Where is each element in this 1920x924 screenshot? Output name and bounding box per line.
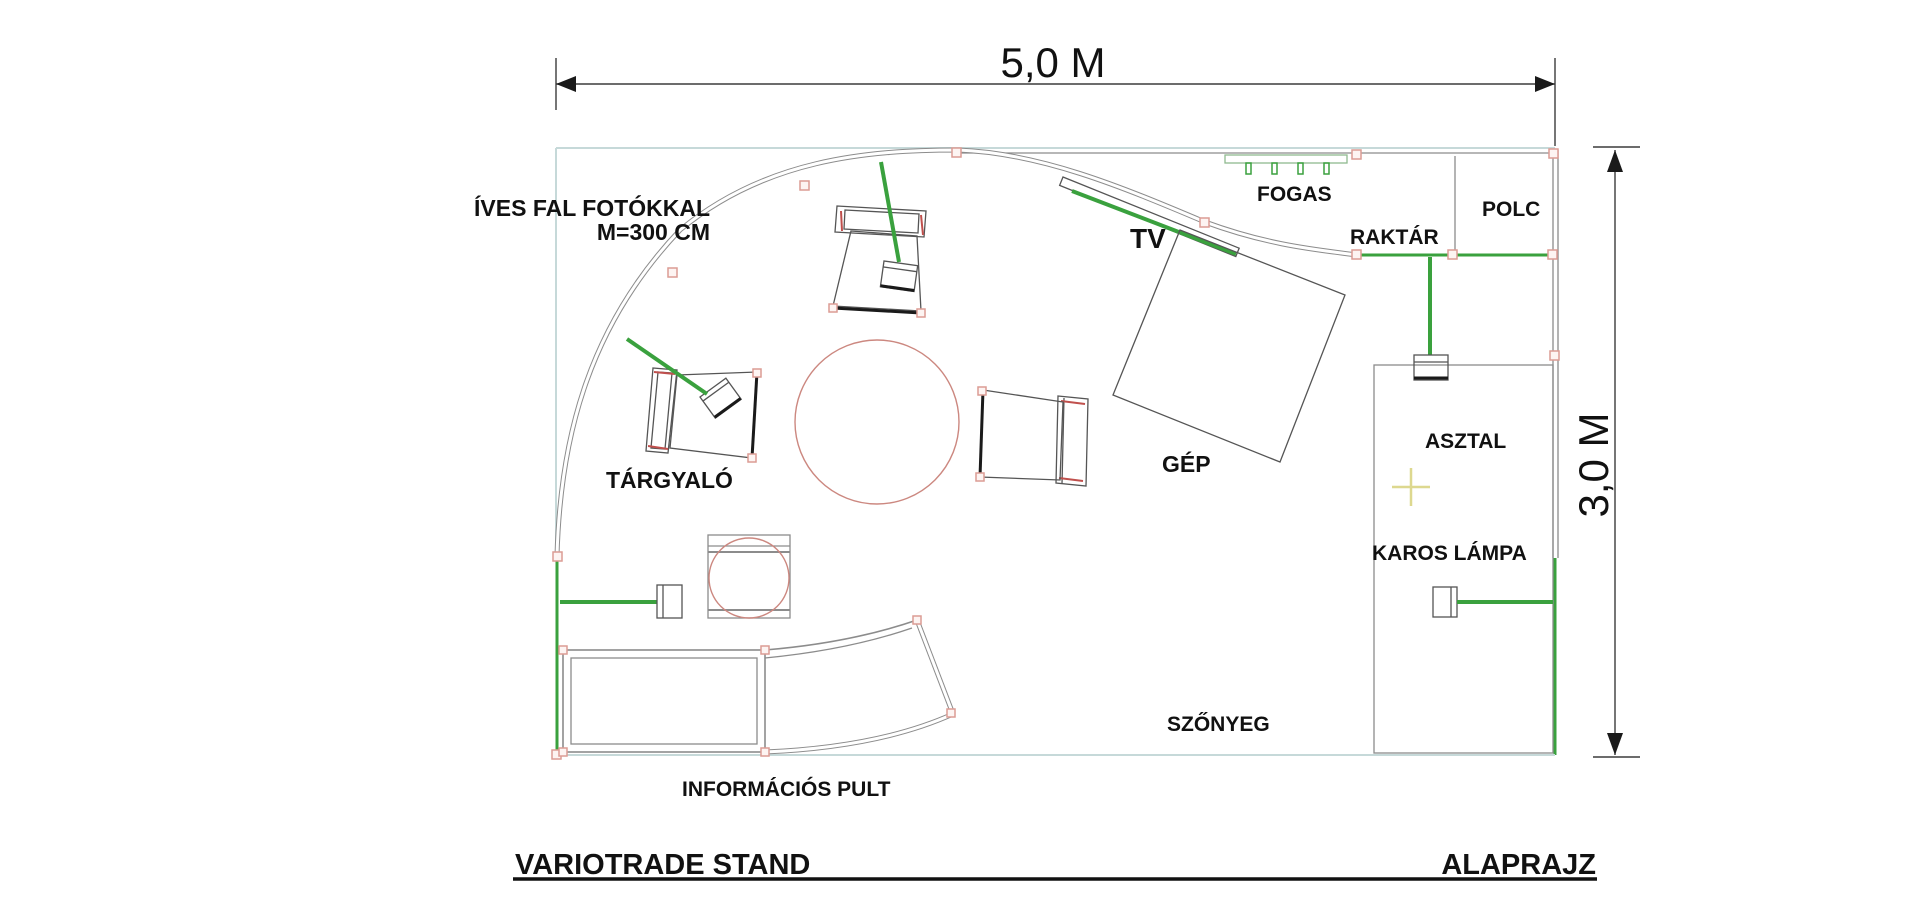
chair-meeting [627, 339, 757, 458]
floorplan-svg: 5,0 M 3,0 M [0, 0, 1920, 924]
arrow-down-icon [1607, 733, 1623, 755]
floorplan-drawing: 5,0 M 3,0 M [0, 0, 1920, 924]
round-table [795, 340, 959, 504]
arm-lamp-right [1433, 587, 1553, 617]
coat-rack [1225, 155, 1347, 174]
chair-top [833, 162, 926, 313]
info-desk [563, 620, 953, 752]
label-tv: TV [1130, 223, 1166, 254]
arrow-up-icon [1607, 150, 1623, 172]
plan-labels: ÍVES FAL FOTÓKKAL M=300 CM FOGAS RAKTÁR … [474, 183, 1540, 801]
stool [708, 535, 790, 618]
lectern [880, 261, 917, 291]
label-polc: POLC [1482, 198, 1540, 221]
label-targyalo: TÁRGYALÓ [606, 466, 733, 493]
chair-right [980, 390, 1088, 486]
dimension-width-label: 5,0 M [1000, 39, 1105, 86]
dimension-horizontal: 5,0 M [556, 39, 1555, 146]
spot-light-line-meeting [627, 339, 707, 394]
center-cross-marker [1392, 468, 1430, 506]
arrow-left-icon [556, 76, 576, 92]
label-szonyeg: SZŐNYEG [1167, 713, 1270, 736]
laptop-table [700, 378, 741, 418]
label-raktar: RAKTÁR [1350, 226, 1439, 249]
label-fogas: FOGAS [1257, 183, 1332, 206]
arrow-right-icon [1535, 76, 1555, 92]
table-zone [1374, 257, 1553, 753]
wall-note-line1: ÍVES FAL FOTÓKKAL [474, 194, 710, 221]
label-asztal: ASZTAL [1425, 430, 1506, 453]
arm-lamp-left [560, 585, 682, 618]
label-informacios-pult: INFORMÁCIÓS PULT [682, 777, 891, 801]
title-block: VARIOTRADE STAND ALAPRAJZ [513, 849, 1597, 881]
spotlight-fixture [1414, 355, 1448, 380]
drawing-title: ALAPRAJZ [1441, 849, 1596, 881]
dimension-height-label: 3,0 M [1570, 412, 1617, 517]
label-karos-lampa: KAROS LÁMPA [1372, 542, 1527, 565]
machine [1113, 230, 1345, 462]
dimension-vertical: 3,0 M [1570, 147, 1640, 757]
wall-note-line2: M=300 CM [597, 219, 710, 245]
project-title: VARIOTRADE STAND [515, 849, 810, 881]
label-gep: GÉP [1162, 450, 1211, 477]
